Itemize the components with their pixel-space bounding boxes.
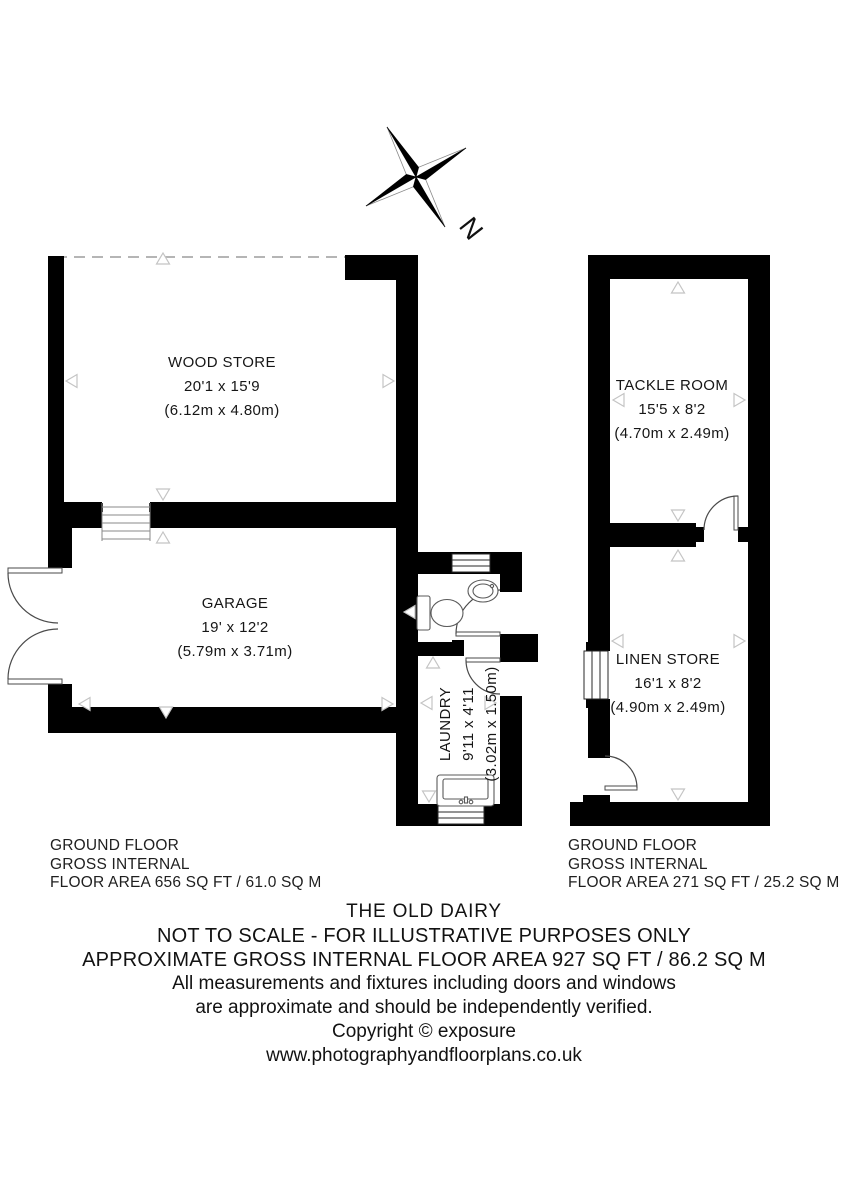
property-title: THE OLD DAIRY (0, 900, 848, 924)
disclaimer-line-1: All measurements and fixtures including … (0, 972, 848, 996)
garage-metric: (5.79m x 3.71m) (177, 643, 292, 660)
linen-store-door (605, 756, 637, 790)
compass-rose: N (366, 127, 489, 245)
measure-arrow (672, 510, 685, 521)
tackle-room-dims: 15'5 x 8'2 (638, 401, 705, 418)
garage-name: GARAGE (202, 595, 269, 612)
wall-nub (586, 642, 610, 651)
wall-segment (588, 700, 610, 758)
wall-segment (48, 502, 72, 568)
approx-area-note: APPROXIMATE GROSS INTERNAL FLOOR AREA 92… (0, 948, 848, 972)
door-swing-arc (704, 496, 738, 530)
right-building-walls (570, 255, 770, 826)
measure-arrow (612, 635, 623, 648)
measure-arrow (423, 791, 436, 802)
wood-store-metric: (6.12m x 4.80m) (164, 402, 279, 419)
wall-segment (150, 502, 396, 528)
toilet (417, 596, 463, 630)
wall-segment (748, 255, 770, 826)
measure-arrow (421, 697, 432, 710)
laundry-name: LAUNDRY (437, 687, 454, 761)
door-leaf (456, 632, 500, 636)
measure-arrow (427, 657, 440, 668)
wc-basin (468, 580, 498, 602)
gross-internal-label: GROSS INTERNAL (50, 856, 321, 875)
ground-floor-label: GROUND FLOOR (568, 837, 839, 856)
tackle-room-metric: (4.70m x 2.49m) (614, 425, 729, 442)
steps (102, 503, 150, 541)
wall-segment (570, 802, 770, 826)
wall-segment (396, 278, 418, 826)
left-building-walls (48, 255, 418, 826)
floorplan-page: N (0, 0, 848, 1200)
wall-segment (588, 523, 696, 547)
floor-area-value: FLOOR AREA 271 SQ FT / 25.2 SQ M (568, 874, 839, 893)
door-leaf (605, 786, 637, 790)
footer: THE OLD DAIRY NOT TO SCALE - FOR ILLUSTR… (0, 900, 848, 1068)
measure-arrow (157, 489, 170, 500)
wall-segment (588, 255, 770, 279)
measure-arrow (734, 635, 745, 648)
tackle-linen-door (704, 496, 738, 530)
garage-dims: 19' x 12'2 (201, 619, 268, 636)
door-swing-arc (8, 629, 58, 679)
wall-segment (588, 255, 610, 650)
copyright-notice: Copyright © exposure (0, 1020, 848, 1044)
wall-segment (500, 552, 522, 592)
measure-arrow (613, 394, 624, 407)
measure-arrow (66, 375, 77, 388)
wall-segment (48, 256, 64, 502)
measure-arrow (672, 550, 685, 561)
door-swing-arc (605, 756, 637, 788)
linen-store-dims: 16'1 x 8'2 (634, 675, 701, 692)
wall-segment (500, 634, 538, 662)
wall-nub (696, 527, 704, 542)
ground-floor-label: GROUND FLOOR (50, 837, 321, 856)
door-leaf (466, 658, 500, 662)
compass-point (413, 177, 445, 227)
wall-nub (586, 699, 610, 708)
laundry-window (438, 806, 484, 824)
wall-segment (48, 707, 396, 733)
floorplan-drawing: N (0, 0, 848, 848)
compass-point (387, 127, 419, 177)
measure-arrow (383, 375, 394, 388)
wood-store-dims: 20'1 x 15'9 (184, 378, 260, 395)
measure-arrow (734, 394, 745, 407)
door-swing-arc (8, 573, 58, 623)
disclaimer-line-2: are approximate and should be independen… (0, 996, 848, 1020)
door-leaf (8, 679, 62, 684)
compass-point (416, 148, 466, 180)
wc-window (452, 554, 490, 572)
measure-arrow (672, 282, 685, 293)
left-building-area-summary: GROUND FLOOR GROSS INTERNAL FLOOR AREA 6… (50, 837, 321, 893)
linen-store-metric: (4.90m x 2.49m) (610, 699, 725, 716)
wall-segment (345, 255, 418, 280)
laundry-dims: 9'11 x 4'11 (460, 687, 477, 761)
gross-internal-label: GROSS INTERNAL (568, 856, 839, 875)
linen-store-name: LINEN STORE (616, 651, 720, 668)
linen-store-window (584, 651, 608, 699)
wood-store-name: WOOD STORE (168, 354, 276, 371)
wall-nub (452, 640, 464, 656)
garage-double-doors (8, 568, 62, 684)
door-leaf (8, 568, 62, 573)
compass-north-label: N (453, 212, 489, 246)
door-leaf (734, 496, 738, 530)
website-url: www.photographyandfloorplans.co.uk (0, 1044, 848, 1068)
measure-arrow (672, 789, 685, 800)
not-to-scale-note: NOT TO SCALE - FOR ILLUSTRATIVE PURPOSES… (0, 924, 848, 948)
laundry-metric: (3.02m x 1.50m) (483, 666, 500, 781)
wall-nub (738, 527, 748, 542)
measure-arrow (157, 253, 170, 264)
right-building-area-summary: GROUND FLOOR GROSS INTERNAL FLOOR AREA 2… (568, 837, 839, 893)
tackle-room-name: TACKLE ROOM (616, 377, 728, 394)
floor-area-value: FLOOR AREA 656 SQ FT / 61.0 SQ M (50, 874, 321, 893)
compass-point (366, 174, 416, 206)
measure-arrow (157, 532, 170, 543)
